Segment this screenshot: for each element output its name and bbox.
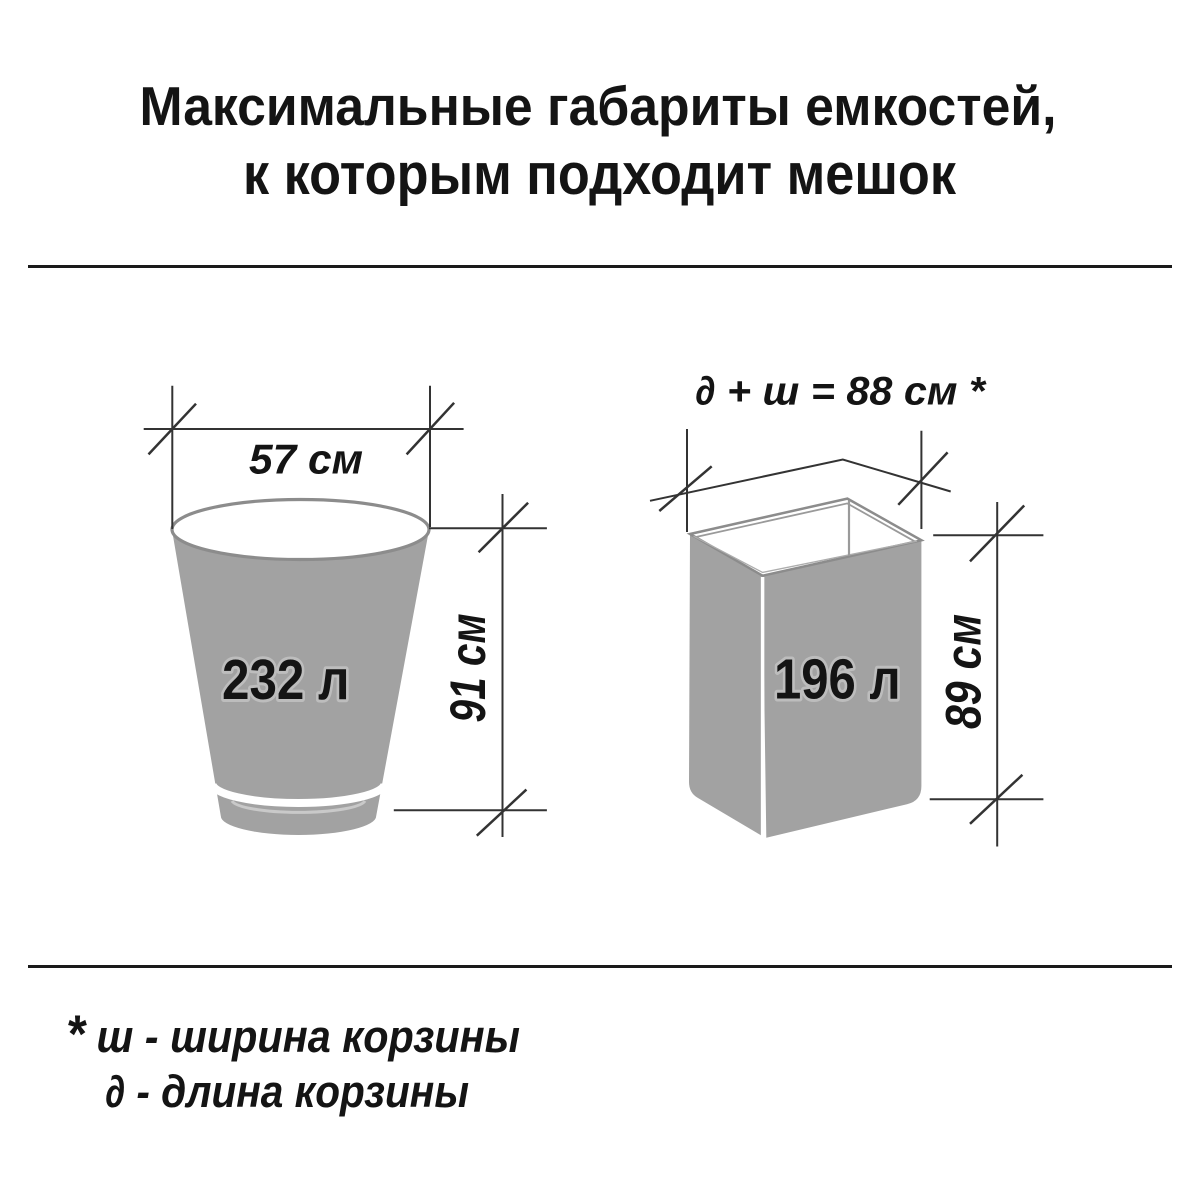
- svg-text:Максимальные габариты емкостей: Максимальные габариты емкостей,: [140, 75, 1057, 137]
- svg-text:89 см: 89 см: [936, 614, 992, 729]
- svg-text:57 см: 57 см: [249, 435, 363, 482]
- svg-text:91 см: 91 см: [440, 613, 496, 722]
- svg-text:232 л: 232 л: [222, 648, 350, 712]
- svg-text:* ш - ширина корзины: * ш - ширина корзины: [66, 1005, 520, 1064]
- svg-text:∂ + ш = 88 см *: ∂ + ш = 88 см *: [695, 369, 988, 413]
- svg-text:∂ - длина корзины: ∂ - длина корзины: [105, 1066, 469, 1117]
- svg-text:к которым подходит мешок: к которым подходит мешок: [243, 142, 957, 207]
- svg-text:196 л: 196 л: [774, 647, 901, 711]
